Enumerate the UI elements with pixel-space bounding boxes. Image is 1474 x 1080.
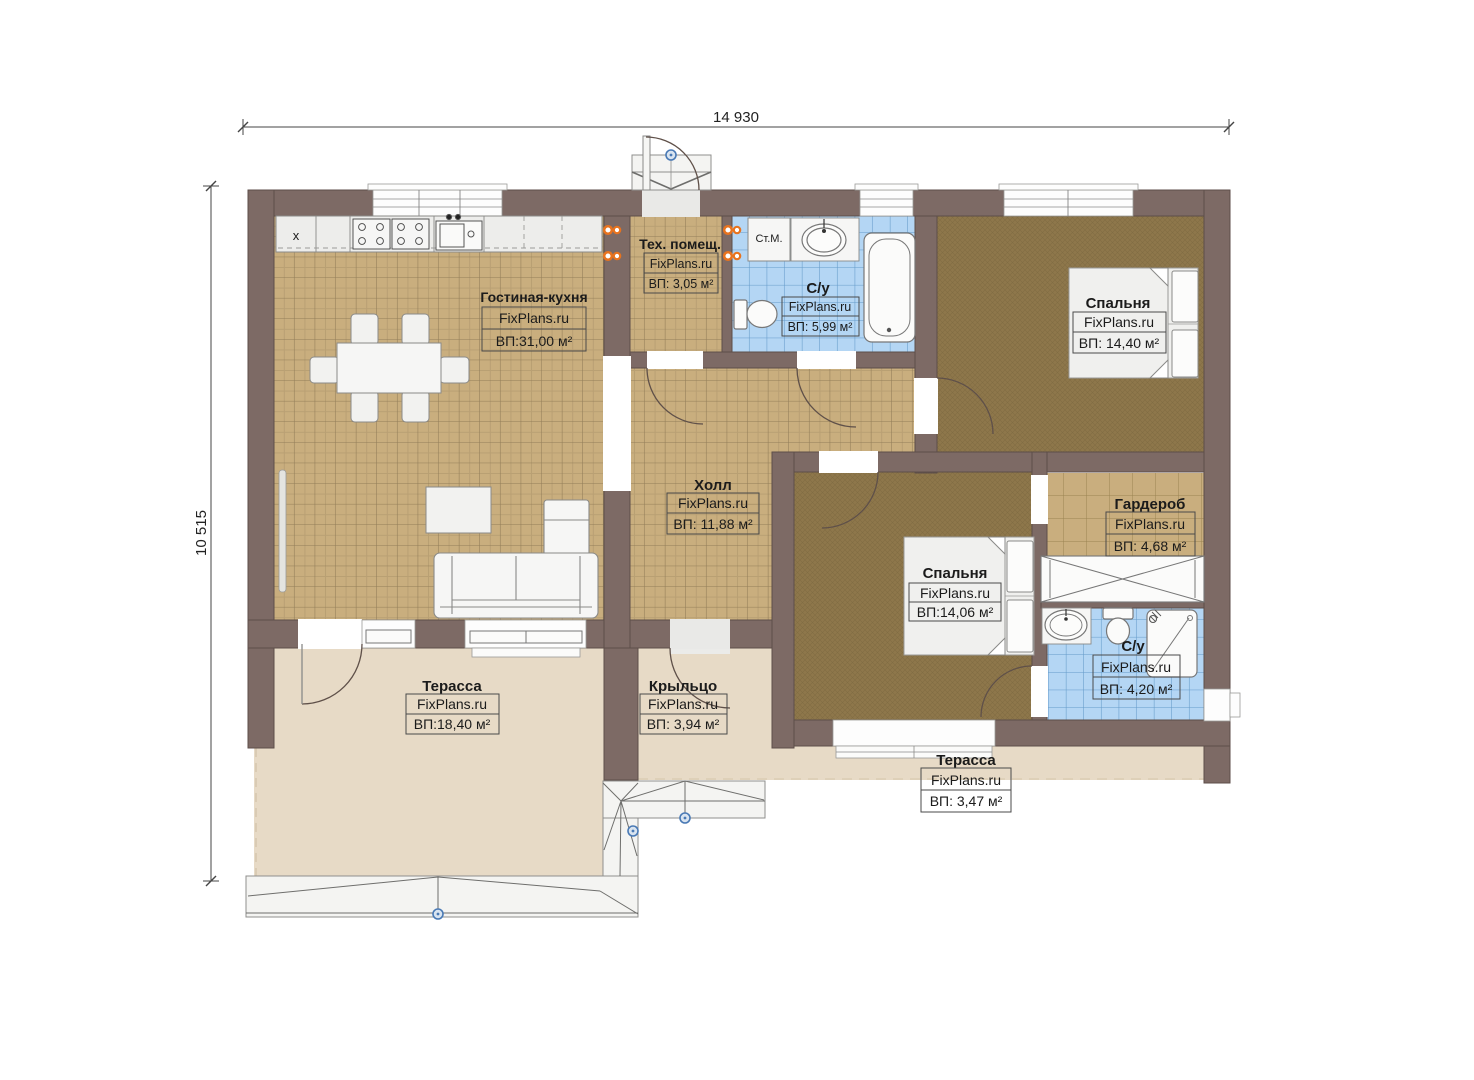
svg-text:Спальня: Спальня: [1086, 295, 1151, 312]
svg-text:14 930: 14 930: [713, 109, 759, 126]
svg-text:10 515: 10 515: [193, 510, 210, 556]
svg-text:FixPlans.ru: FixPlans.ru: [648, 696, 718, 712]
svg-text:ВП:18,40 м²: ВП:18,40 м²: [414, 716, 491, 732]
svg-text:С/у: С/у: [806, 280, 830, 297]
svg-text:ВП:14,06 м²: ВП:14,06 м²: [917, 604, 994, 620]
svg-text:FixPlans.ru: FixPlans.ru: [499, 310, 569, 326]
svg-text:ВП: 3,47 м²: ВП: 3,47 м²: [930, 793, 1003, 809]
svg-text:ВП: 4,20 м²: ВП: 4,20 м²: [1100, 681, 1173, 697]
svg-text:FixPlans.ru: FixPlans.ru: [931, 772, 1001, 788]
svg-text:FixPlans.ru: FixPlans.ru: [650, 257, 713, 271]
svg-text:ВП: 11,88 м²: ВП: 11,88 м²: [673, 516, 753, 532]
svg-text:ВП: 4,68 м²: ВП: 4,68 м²: [1114, 538, 1187, 554]
svg-text:ВП: 5,99 м²: ВП: 5,99 м²: [788, 320, 853, 334]
svg-text:FixPlans.ru: FixPlans.ru: [417, 696, 487, 712]
svg-text:FixPlans.ru: FixPlans.ru: [1115, 516, 1185, 532]
svg-text:ВП: 3,05 м²: ВП: 3,05 м²: [649, 277, 714, 291]
svg-text:FixPlans.ru: FixPlans.ru: [678, 495, 748, 511]
svg-text:Тех. помещ.: Тех. помещ.: [639, 236, 721, 252]
svg-text:ВП: 14,40 м²: ВП: 14,40 м²: [1079, 335, 1160, 351]
svg-text:FixPlans.ru: FixPlans.ru: [1084, 314, 1154, 330]
svg-text:Терасса: Терасса: [422, 678, 482, 695]
svg-text:FixPlans.ru: FixPlans.ru: [920, 585, 990, 601]
svg-text:ВП:31,00 м²: ВП:31,00 м²: [496, 333, 573, 349]
svg-text:FixPlans.ru: FixPlans.ru: [1101, 659, 1171, 675]
svg-text:x: x: [293, 228, 300, 243]
svg-text:Холл: Холл: [694, 477, 732, 494]
svg-text:Ст.М.: Ст.М.: [755, 233, 782, 245]
svg-text:ВП: 3,94 м²: ВП: 3,94 м²: [647, 716, 720, 732]
svg-text:FixPlans.ru: FixPlans.ru: [789, 300, 852, 314]
svg-text:Гардероб: Гардероб: [1115, 496, 1186, 513]
svg-text:Крыльцо: Крыльцо: [649, 678, 717, 695]
svg-text:С/у: С/у: [1121, 638, 1145, 655]
svg-text:Терасса: Терасса: [936, 752, 996, 769]
svg-text:Гостиная-кухня: Гостиная-кухня: [480, 289, 587, 305]
svg-text:Спальня: Спальня: [923, 565, 988, 582]
